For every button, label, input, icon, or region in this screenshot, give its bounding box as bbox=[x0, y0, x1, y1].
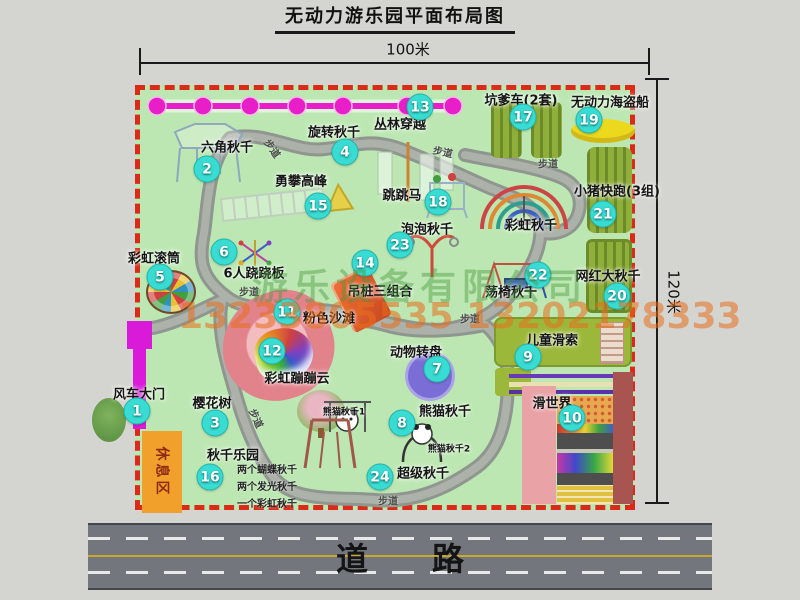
watermark-phone: 13233805535 13202178333 bbox=[178, 296, 742, 337]
swing-park-note: 两个发光秋千 bbox=[237, 478, 297, 493]
label-panda-swing-2: 熊猫秋千2 bbox=[428, 442, 470, 455]
badge-8: 8 bbox=[389, 410, 416, 437]
zipline-cable bbox=[509, 374, 615, 378]
label-super-swing: 超级秋千 bbox=[397, 463, 449, 482]
slide-maroon-band bbox=[613, 372, 633, 504]
badge-1: 1 bbox=[124, 398, 151, 425]
label-panda-swing-1: 熊猫秋千1 bbox=[323, 405, 365, 418]
label-panda-swing: 熊猫秋千 bbox=[419, 401, 471, 420]
dimension-tick-top-right bbox=[648, 48, 650, 75]
label-hexagon-swing: 六角秋千 bbox=[201, 137, 253, 156]
badge-13: 13 bbox=[407, 94, 434, 121]
road-label: 道路 bbox=[272, 534, 528, 580]
label-piggy-run: 小猪快跑(3组) bbox=[574, 181, 660, 200]
dimension-line-right bbox=[656, 79, 658, 503]
swing-park-note: 两个蝴蝶秋千 bbox=[237, 461, 297, 476]
rest-area-label: 休息区 bbox=[152, 447, 172, 498]
dimension-tick-right-top bbox=[645, 78, 669, 80]
badge-2: 2 bbox=[194, 156, 221, 183]
road: 道路 bbox=[88, 523, 712, 590]
page-title: 无动力游乐园平面布局图 bbox=[275, 2, 515, 34]
badge-19: 19 bbox=[576, 107, 603, 134]
dimension-label-width: 100米 bbox=[386, 39, 430, 60]
label-rainbow-swing: 彩虹秋千 bbox=[505, 215, 557, 234]
cherry-tree-trunk bbox=[318, 428, 324, 438]
badge-5: 5 bbox=[147, 264, 174, 291]
label-cherry-tree: 樱花树 bbox=[192, 393, 231, 412]
badge-18: 18 bbox=[425, 189, 452, 216]
badge-21: 21 bbox=[590, 201, 617, 228]
badge-9: 9 bbox=[515, 344, 542, 371]
tree bbox=[92, 398, 126, 442]
badge-15: 15 bbox=[305, 193, 332, 220]
badge-23: 23 bbox=[387, 232, 414, 259]
dimension-tick-right-bottom bbox=[645, 502, 669, 504]
walkway-label: 步道 bbox=[378, 493, 398, 508]
label-rainbow-cloud: 彩虹蹦蹦云 bbox=[264, 368, 329, 387]
badge-24: 24 bbox=[367, 464, 394, 491]
rest-area-block: 休息区 bbox=[142, 431, 182, 513]
windmill-gate-top bbox=[127, 321, 152, 349]
dimension-line-top bbox=[140, 62, 649, 64]
badge-17: 17 bbox=[510, 104, 537, 131]
tricky-car-pad-2 bbox=[531, 102, 562, 158]
badge-7: 7 bbox=[424, 356, 451, 383]
walkway-label: 步道 bbox=[538, 156, 558, 171]
screenshot-root: 无动力游乐园平面布局图 100米 120米 bbox=[0, 0, 800, 600]
badge-3: 3 bbox=[202, 410, 229, 437]
label-rotating-swing: 旋转秋千 bbox=[308, 122, 360, 141]
slide-world-area bbox=[495, 368, 635, 508]
badge-6: 6 bbox=[211, 239, 238, 266]
badge-10: 10 bbox=[559, 405, 586, 432]
label-climbing-peak: 勇攀高峰 bbox=[275, 171, 327, 190]
label-jumping-horse: 跳跳马 bbox=[382, 185, 421, 204]
badge-4: 4 bbox=[332, 139, 359, 166]
badge-16: 16 bbox=[197, 464, 224, 491]
dimension-tick-top-left bbox=[139, 48, 141, 75]
swing-park-note: 一个彩虹秋千 bbox=[237, 495, 297, 510]
badge-12: 12 bbox=[259, 338, 286, 365]
